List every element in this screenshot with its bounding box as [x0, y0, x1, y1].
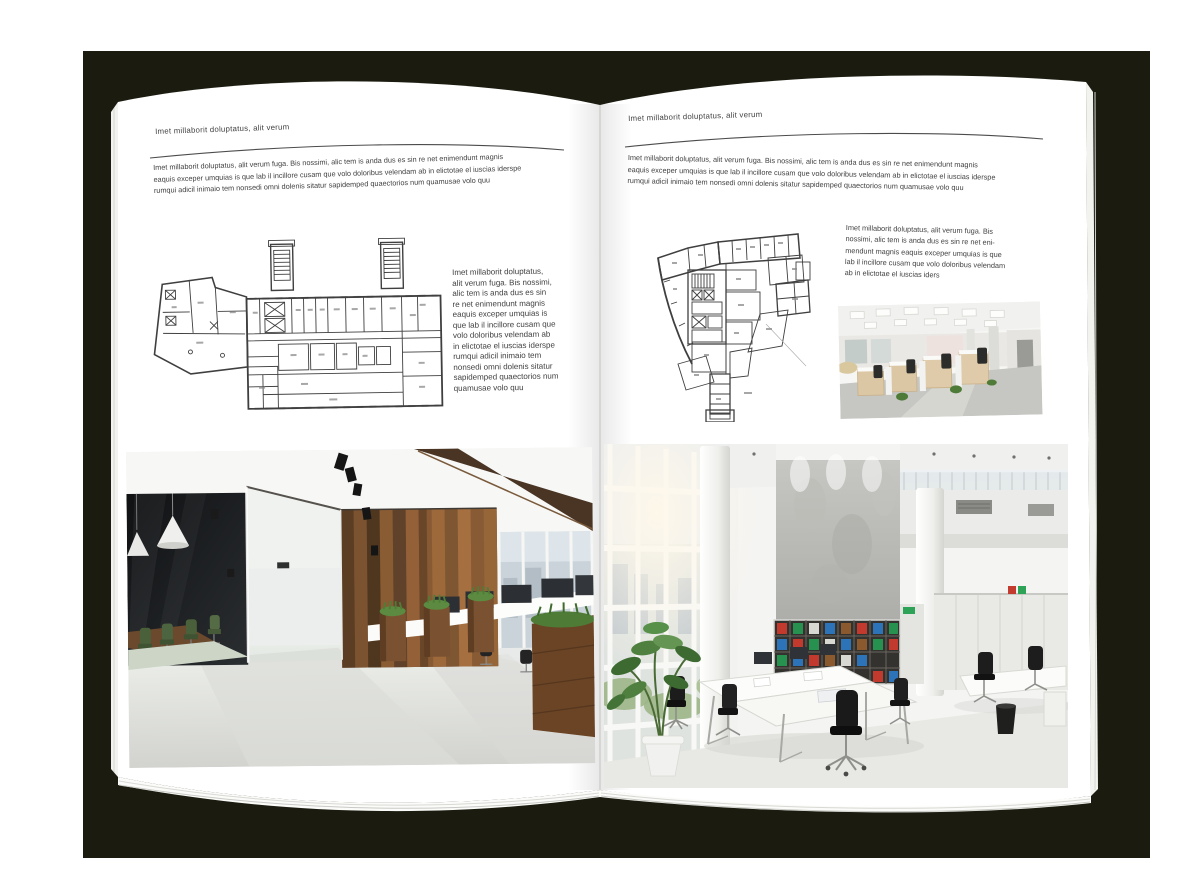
right-photo-atrium-office	[604, 444, 1068, 788]
glass-meeting-room	[126, 486, 342, 670]
left-side-text: Imet millaborit doluptatus, alit verum f…	[452, 267, 559, 394]
right-photo-cubicles	[838, 301, 1043, 419]
right-header-rule	[623, 128, 1047, 152]
brochure-mockup: Imet millaborit doluptatus, alit verum I…	[0, 0, 1200, 891]
concrete-wall	[776, 444, 900, 620]
safety-sign-red	[1008, 586, 1016, 594]
text-line: quamusae volo quu	[454, 382, 559, 394]
text-line: in elictotae el iuscias iderspe	[453, 340, 558, 352]
text-line: alic tem is anda dus es sin	[452, 288, 557, 300]
safety-sign-green	[1018, 586, 1026, 594]
text-line: sapidemped quaectorios num	[453, 372, 558, 384]
text-line: eaquis exceper umquias is	[453, 309, 558, 321]
right-floor-plan	[648, 224, 816, 422]
text-line: Imet millaborit doluptatus,	[452, 267, 557, 279]
right-side-text: Imet millaborit doluptatus, alit verum f…	[845, 222, 1007, 283]
stair-tower	[269, 240, 296, 290]
column	[700, 446, 730, 784]
text-line: volo doloribus velendam ab	[453, 330, 558, 342]
left-photo-office-interior	[126, 447, 595, 768]
exit-sign	[903, 607, 915, 614]
shredder-bin	[996, 706, 1016, 734]
stair-tower	[378, 238, 405, 288]
left-floor-plan	[148, 233, 449, 418]
